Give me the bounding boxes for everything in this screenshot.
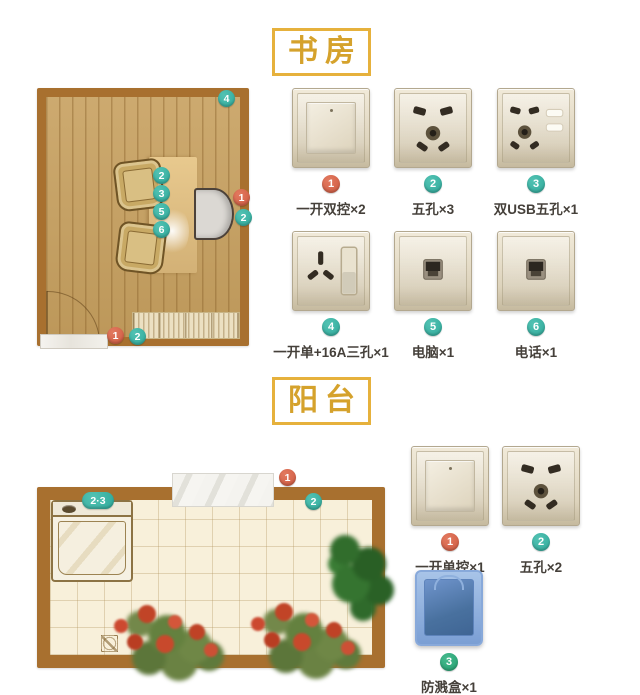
plan-marker: 2 xyxy=(235,209,252,226)
washer-lid xyxy=(58,521,126,575)
washing-machine xyxy=(51,500,133,582)
computer-jack-icon xyxy=(394,231,472,311)
phone-jack-icon xyxy=(497,231,575,311)
plan-marker: 2 xyxy=(153,167,170,184)
splash-proof-box-icon xyxy=(415,570,483,646)
plan-marker: 5 xyxy=(153,203,170,220)
plan-marker: 1 xyxy=(107,327,124,344)
product-card: 3 防溅盒×1 xyxy=(384,570,514,695)
plan-marker: 3 xyxy=(153,185,170,202)
washer-knob xyxy=(62,505,76,513)
product-badge: 6 xyxy=(527,318,545,336)
product-badge: 3 xyxy=(440,653,458,671)
balcony-title: 阳台 xyxy=(272,377,371,425)
product-label: 电脑×1 xyxy=(412,341,454,361)
product-badge: 5 xyxy=(424,318,442,336)
product-label: 双USB五孔×1 xyxy=(494,198,578,218)
product-badge: 1 xyxy=(441,533,459,551)
plan-marker: 2 xyxy=(129,328,146,345)
product-label: 防溅盒×1 xyxy=(421,676,477,695)
product-label: 一开双控×2 xyxy=(296,198,365,218)
plan-marker: 1 xyxy=(233,189,250,206)
flower-bed xyxy=(245,591,357,668)
product-badge: 2 xyxy=(424,175,442,193)
balcony-floor-plan: 2·3 1 2 xyxy=(37,487,385,668)
door-threshold xyxy=(40,334,108,349)
splash-box-cover xyxy=(424,579,474,636)
single-switch-icon xyxy=(292,88,370,168)
product-card: 2 五孔×2 xyxy=(476,446,606,576)
study-floor-plan: 4 2 3 5 6 1 2 1 2 xyxy=(37,88,249,346)
product-badge: 4 xyxy=(322,318,340,336)
product-label: 电话×1 xyxy=(515,341,557,361)
product-badge: 1 xyxy=(322,175,340,193)
office-chair xyxy=(194,188,234,240)
plan-marker: 6 xyxy=(153,221,170,238)
product-badge: 2 xyxy=(532,533,550,551)
switch-rocker xyxy=(306,102,356,154)
infographic-canvas: 书房 4 2 3 5 6 1 2 1 2 1 一开双控×2 xyxy=(0,0,640,695)
plan-marker: 2 xyxy=(305,493,322,510)
product-badge: 3 xyxy=(527,175,545,193)
product-card: 3 双USB五孔×1 xyxy=(471,88,601,218)
switch-rocker xyxy=(425,460,475,512)
plan-marker: 1 xyxy=(279,469,296,486)
product-card: 6 电话×1 xyxy=(471,231,601,361)
five-hole-socket-icon xyxy=(502,446,580,526)
bookshelf xyxy=(132,312,240,339)
flower-bed xyxy=(108,593,235,670)
marble-threshold xyxy=(172,473,274,507)
five-hole-socket-icon xyxy=(394,88,472,168)
product-label: 五孔×2 xyxy=(520,556,562,576)
study-title: 书房 xyxy=(272,28,371,76)
plan-marker: 4 xyxy=(218,90,235,107)
usb-five-hole-socket-icon xyxy=(497,88,575,168)
plan-marker: 2·3 xyxy=(82,492,114,509)
product-label: 五孔×3 xyxy=(412,198,454,218)
switch-16a-socket-icon xyxy=(292,231,370,311)
